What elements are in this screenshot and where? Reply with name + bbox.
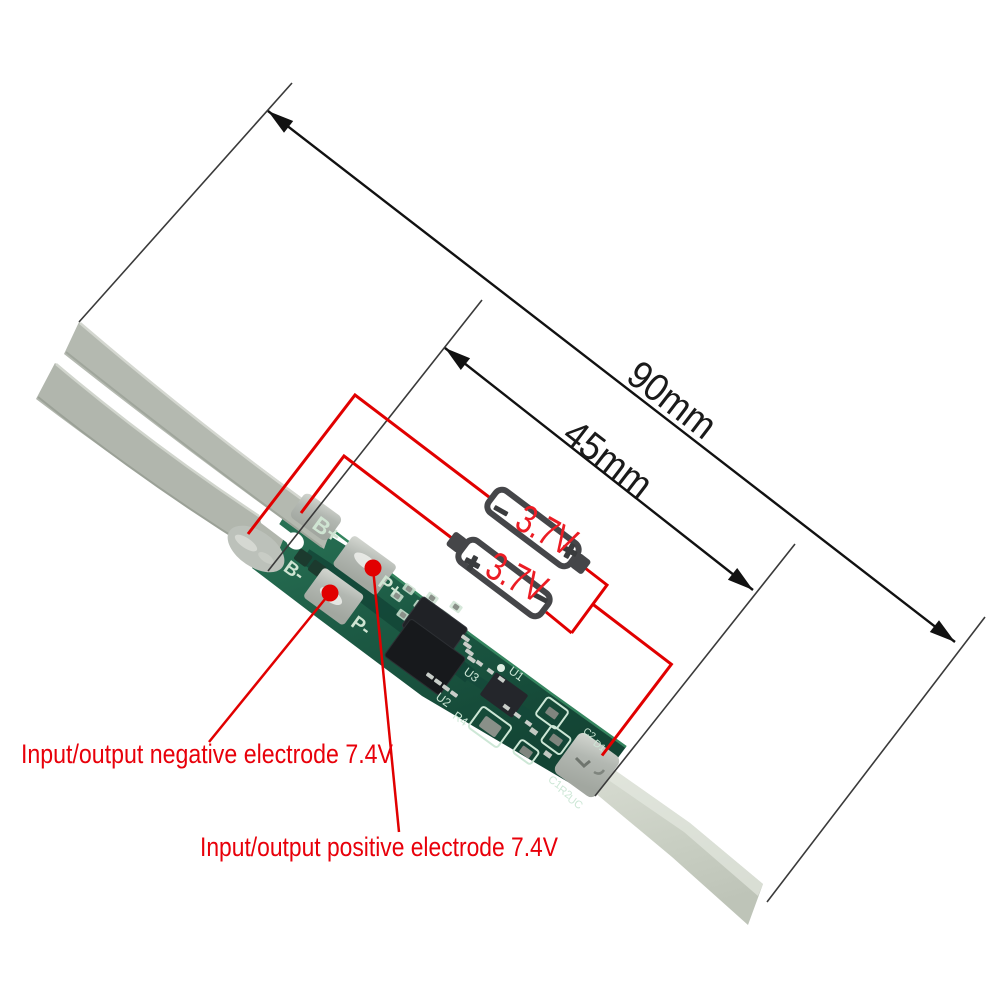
svg-text:Input/output positive electrod: Input/output positive electrode 7.4V (200, 832, 558, 862)
svg-text:Input/output negative electrod: Input/output negative electrode 7.4V (21, 739, 393, 769)
